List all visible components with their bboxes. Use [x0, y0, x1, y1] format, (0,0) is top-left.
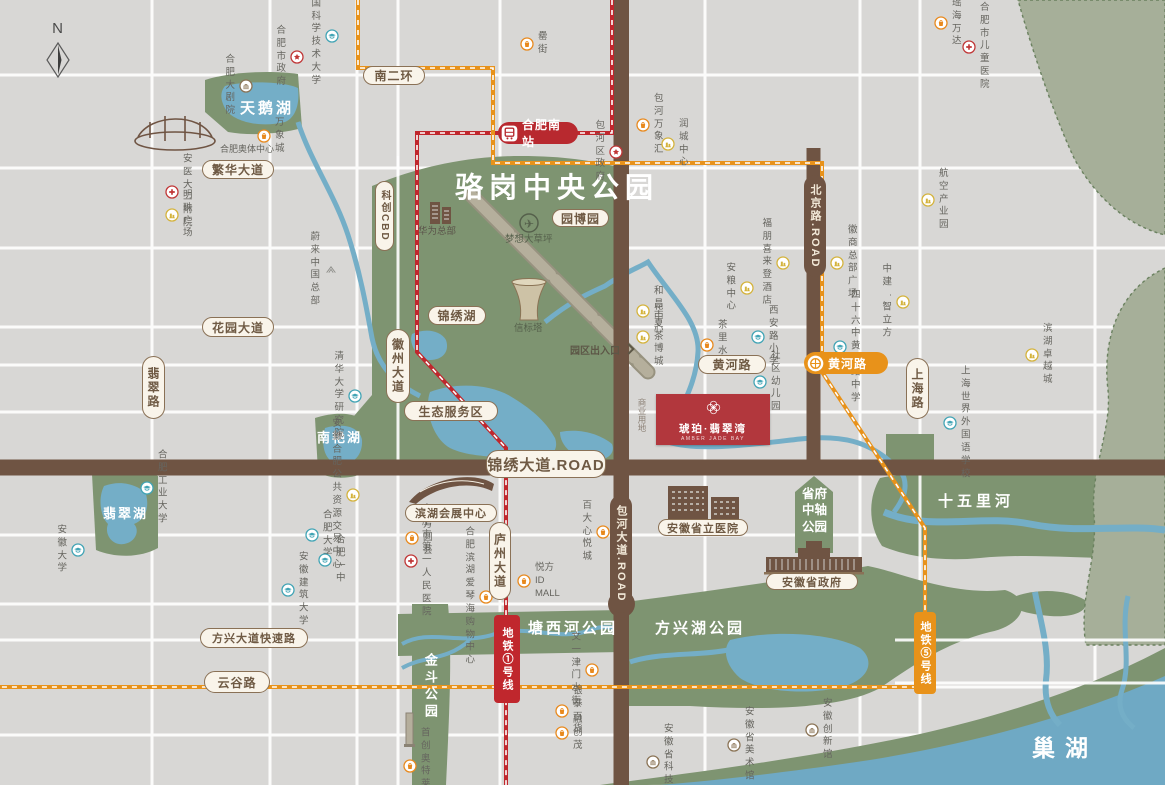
- poi-label: 悦方ID MALL: [535, 562, 560, 600]
- poi-marker: 合肥大学: [305, 528, 319, 542]
- school-icon: [71, 543, 85, 557]
- hospital-cross-icon: [404, 554, 418, 568]
- school-icon: [325, 29, 339, 43]
- poi-label: 滨湖卓越城: [1043, 323, 1053, 387]
- poi-marker: 徽商总部广场: [830, 256, 844, 270]
- museum-icon: [805, 723, 819, 737]
- school-icon: [281, 583, 295, 597]
- twin-tower-drawing: [404, 713, 415, 747]
- poi-label: 中国科学技术大学: [311, 0, 321, 87]
- government-star-icon: [609, 145, 623, 159]
- poi-label: 首创奥特莱斯: [421, 728, 431, 785]
- school-icon: [305, 528, 319, 542]
- poi-label: 包河区政府: [595, 120, 605, 184]
- poi-marker: 航空产业园: [921, 193, 935, 207]
- poi-marker: 包河区政府: [609, 145, 623, 159]
- map-label: 方兴湖公园: [655, 619, 745, 639]
- map-label: 园区出入口: [570, 345, 633, 358]
- mall-icon: [257, 129, 271, 143]
- poi-marker: 合肥工业大学: [140, 481, 154, 495]
- road-badge: 包河大道.ROAD: [610, 495, 632, 613]
- chevron-right-icon: [623, 343, 634, 354]
- station-label: 黄河路: [828, 355, 867, 372]
- poi-marker: 茶里水街: [700, 338, 714, 352]
- poi-label: 罍街: [538, 31, 548, 57]
- road-badge: 安徽省政府: [766, 573, 858, 590]
- school-icon: [348, 389, 362, 403]
- poi-label: 福朋喜来登酒店: [762, 218, 772, 308]
- poi-marker: 中建·智立方: [896, 295, 910, 309]
- mall-icon: [585, 663, 599, 677]
- map-label: 翡翠湖: [103, 506, 148, 523]
- road-badge: 徽州大道: [386, 329, 410, 403]
- station-badge: 黄河路: [804, 352, 888, 374]
- school-icon: [753, 375, 767, 389]
- map-label: 巢湖: [1032, 734, 1098, 764]
- map-label: 信标塔: [514, 323, 543, 335]
- poi-label: 瑶海万达: [952, 0, 962, 49]
- mall-icon: [934, 16, 948, 30]
- school-icon: [751, 330, 765, 344]
- poi-marker: 罍街: [520, 37, 534, 51]
- poi-label: 融创茂: [573, 714, 583, 752]
- svg-text:✈: ✈: [524, 217, 534, 231]
- hospital-cross-icon: [962, 40, 976, 54]
- road-badge: 安徽省立医院: [658, 519, 748, 536]
- road-badge: 锦绣大道.ROAD: [486, 450, 606, 478]
- mall-icon: [596, 525, 610, 539]
- mall-icon: [520, 37, 534, 51]
- poi-label: 润城中心: [679, 118, 689, 169]
- biz-icon: [1025, 348, 1039, 362]
- school-icon: [71, 543, 85, 557]
- city-location-map: ✈ N 琥珀·翡翠湾 AMBER JADE BAY 南二环繁华大道花园大道锦绣湖…: [0, 0, 1165, 785]
- hosp-icon: [165, 185, 179, 199]
- poi-label: 万象城: [275, 117, 285, 155]
- poi-marker: 滨湖卓越城: [1025, 348, 1039, 362]
- government-star-icon: [290, 50, 304, 64]
- poi-marker: 中国科学技术大学: [325, 29, 339, 43]
- biz-icon: [165, 208, 179, 222]
- poi-marker: 安徽合肥 公共资源交易中心: [346, 488, 360, 502]
- business-icon: [921, 193, 935, 207]
- mall-icon: [517, 574, 531, 588]
- nio-icon: [324, 263, 338, 277]
- poi-marker: 合肥市 第一人民医院: [404, 554, 418, 568]
- poi-marker: 合肥大剧院: [239, 79, 253, 93]
- poi-label: 上海世界外国语学校: [961, 365, 971, 480]
- poi-label: 安粮中心: [726, 262, 736, 313]
- poi-label: 安徽创新馆: [823, 698, 833, 762]
- road-badge: 方兴大道快速路: [200, 628, 308, 648]
- poi-label: 社区幼儿园: [771, 350, 781, 414]
- museum-icon: [727, 738, 741, 752]
- poi-label: 合肥市政府: [276, 25, 286, 89]
- business-icon: [776, 256, 790, 270]
- poi-marker: 安徽大学: [71, 543, 85, 557]
- museum-icon: [646, 755, 660, 769]
- mall-icon: [555, 726, 569, 740]
- mall-icon: [596, 525, 610, 539]
- road-badge: 翡翠路: [142, 356, 165, 419]
- biz-icon: [776, 256, 790, 270]
- project-marker: 琥珀·翡翠湾 AMBER JADE BAY: [656, 394, 770, 445]
- map-graphics: ✈: [0, 0, 1165, 785]
- park-title: 骆岗中央公园: [455, 170, 659, 206]
- map-label: 华为总部: [418, 226, 456, 238]
- hospital-cross-icon: [165, 185, 179, 199]
- metro-logo-icon: [807, 355, 824, 372]
- road-badge: 云谷路: [204, 671, 270, 693]
- road-badge: 庐州大道: [489, 522, 511, 600]
- poi-marker: 文一津门水街: [585, 663, 599, 677]
- station-label: 合肥南站: [522, 116, 569, 150]
- road-badge: 花园大道: [202, 317, 274, 337]
- metro-line-badge: 地铁①号线: [494, 615, 520, 703]
- poi-marker: 包河万象汇: [636, 118, 650, 132]
- poi-marker: 安徽创新馆: [805, 723, 819, 737]
- biz-icon: [636, 304, 650, 318]
- poi-marker: 合肥市儿童医院: [962, 40, 976, 54]
- road-badge: 北京路.ROAD: [804, 175, 826, 277]
- gov-icon: [609, 145, 623, 159]
- mall-icon: [700, 338, 714, 352]
- poi-label: 合肥大剧院: [225, 54, 235, 118]
- poi-marker: 安粮中心: [740, 281, 754, 295]
- metro-icon: [807, 355, 824, 372]
- biz-icon: [921, 193, 935, 207]
- train-icon: [501, 125, 518, 142]
- poi-label: 合肥一中: [336, 534, 346, 585]
- poi-marker: 和昌中心: [636, 304, 650, 318]
- road-badge: 黄河路: [698, 355, 766, 374]
- school-icon: [751, 330, 765, 344]
- project-subtitle: AMBER JADE BAY: [656, 436, 770, 443]
- compass-needle-icon: [36, 37, 80, 83]
- poi-marker: 安徽省科技馆: [646, 755, 660, 769]
- poi-label: 安徽大学: [57, 524, 67, 575]
- museum-icon: [727, 738, 741, 752]
- poi-label: 华夏茶博城: [654, 305, 664, 369]
- business-icon: [896, 295, 910, 309]
- poi-marker: 西安路小学: [751, 330, 765, 344]
- road-badge: 南二环: [363, 66, 425, 85]
- poi-label: 安徽建筑大学: [299, 552, 309, 629]
- biz-icon: [896, 295, 910, 309]
- poi-label: 合肥滨湖 爱琴海购物中心: [465, 527, 475, 668]
- mall-icon: [555, 726, 569, 740]
- project-name: 琥珀·翡翠湾: [656, 423, 770, 436]
- compass: N: [36, 20, 80, 88]
- compass-north-label: N: [36, 20, 80, 37]
- road-badge: 园博园: [552, 209, 609, 227]
- school-icon: [943, 416, 957, 430]
- mall-icon: [555, 704, 569, 718]
- mall-icon: [520, 37, 534, 51]
- mall-icon: [700, 338, 714, 352]
- poi-label: 蔚来中国总部: [310, 232, 320, 309]
- mall-icon: [555, 704, 569, 718]
- mall-icon: [517, 574, 531, 588]
- museum-icon: [239, 79, 253, 93]
- road-badge: 滨湖会展中心: [405, 504, 497, 522]
- poi-marker: 万象城: [257, 129, 271, 143]
- poi-label: 安徽省科技馆: [664, 724, 674, 785]
- hosp-icon: [404, 554, 418, 568]
- poi-marker: 安医大二附院: [165, 185, 179, 199]
- poi-marker: 合肥一中: [318, 553, 332, 567]
- poi-label: 安徽省美术馆: [745, 707, 755, 784]
- road-badge: 上海路: [906, 358, 929, 419]
- business-icon: [1025, 348, 1039, 362]
- mall-icon: [636, 118, 650, 132]
- poi-label: 合肥工业大学: [158, 450, 168, 527]
- business-icon: [636, 330, 650, 344]
- mall-icon: [636, 118, 650, 132]
- biz-icon: [346, 488, 360, 502]
- business-icon: [165, 208, 179, 222]
- biz-icon: [830, 256, 844, 270]
- poi-label: 明珠广场: [183, 189, 193, 240]
- poi-marker: 首创奥特莱斯: [403, 759, 417, 773]
- hosp-icon: [962, 40, 976, 54]
- biz-icon: [636, 330, 650, 344]
- school-icon: [281, 583, 295, 597]
- poi-marker: 方圆荟: [405, 531, 419, 545]
- poi-marker: 悦方ID MALL: [517, 574, 531, 588]
- nio-logo-icon: [324, 263, 338, 277]
- school-icon: [318, 553, 332, 567]
- map-label: 天鹅湖: [240, 99, 294, 119]
- mall-icon: [585, 663, 599, 677]
- project-flower-logo-icon: [703, 397, 724, 418]
- museum-icon: [239, 79, 253, 93]
- map-label: 金斗公园: [421, 653, 438, 721]
- metro-line-badge: 地铁⑤号线: [914, 612, 936, 694]
- poi-marker: 合肥市政府: [290, 50, 304, 64]
- poi-marker: 清华大学研究院: [348, 389, 362, 403]
- poi-marker: 融创茂: [555, 726, 569, 740]
- station-badge: 合肥南站: [498, 122, 578, 144]
- mall-icon: [405, 531, 419, 545]
- map-label: 十五里河: [938, 492, 1014, 512]
- poi-marker: 百大心悦城: [596, 525, 610, 539]
- mall-icon: [934, 16, 948, 30]
- biz-icon: [740, 281, 754, 295]
- poi-marker: 蔚来中国总部: [324, 263, 338, 277]
- map-label: 梦想大草坪: [505, 234, 553, 246]
- school-icon: [325, 29, 339, 43]
- mall-icon: [403, 759, 417, 773]
- poi-marker: 社区幼儿园: [753, 375, 767, 389]
- business-icon: [830, 256, 844, 270]
- mall-icon: [257, 129, 271, 143]
- museum-icon: [805, 723, 819, 737]
- poi-marker: 安徽建筑大学: [281, 583, 295, 597]
- poi-label: 航空产业园: [939, 168, 949, 232]
- poi-label: 合肥市儿童医院: [980, 2, 990, 92]
- road-badge: 科创CBD: [375, 181, 394, 251]
- poi-label: 中建·智立方: [882, 264, 892, 341]
- poi-label: 四十六中黄河路中学: [851, 289, 861, 404]
- poi-marker: 银泰百货: [555, 704, 569, 718]
- business-icon: [346, 488, 360, 502]
- school-icon: [305, 528, 319, 542]
- gov-icon: [290, 50, 304, 64]
- mall-icon: [405, 531, 419, 545]
- poi-marker: 明珠广场: [165, 208, 179, 222]
- road-badge: 生态服务区: [404, 401, 498, 421]
- poi-label: 百大心悦城: [582, 500, 592, 564]
- poi-marker: 上海世界外国语学校: [943, 416, 957, 430]
- map-label: 省府 中轴 公园: [796, 486, 833, 535]
- poi-marker: 润城中心: [661, 137, 675, 151]
- baohe-avenue-road: [614, 0, 630, 785]
- business-icon: [661, 137, 675, 151]
- school-icon: [140, 481, 154, 495]
- business-icon: [636, 304, 650, 318]
- road-badge: 锦绣湖: [428, 306, 486, 325]
- school-icon: [753, 375, 767, 389]
- biz-icon: [661, 137, 675, 151]
- poi-marker: 瑶海万达: [934, 16, 948, 30]
- school-icon: [943, 416, 957, 430]
- school-icon: [348, 389, 362, 403]
- road-badge: 繁华大道: [202, 160, 274, 179]
- map-label: 商业用地: [636, 398, 647, 432]
- business-icon: [740, 281, 754, 295]
- map-label: 合肥奥体中心: [220, 144, 274, 156]
- poi-marker: 华夏茶博城: [636, 330, 650, 344]
- mall-icon: [403, 759, 417, 773]
- museum-icon: [646, 755, 660, 769]
- poi-marker: 福朋喜来登酒店: [776, 256, 790, 270]
- school-icon: [318, 553, 332, 567]
- school-icon: [140, 481, 154, 495]
- train-icon: [501, 125, 518, 142]
- poi-marker: 安徽省美术馆: [727, 738, 741, 752]
